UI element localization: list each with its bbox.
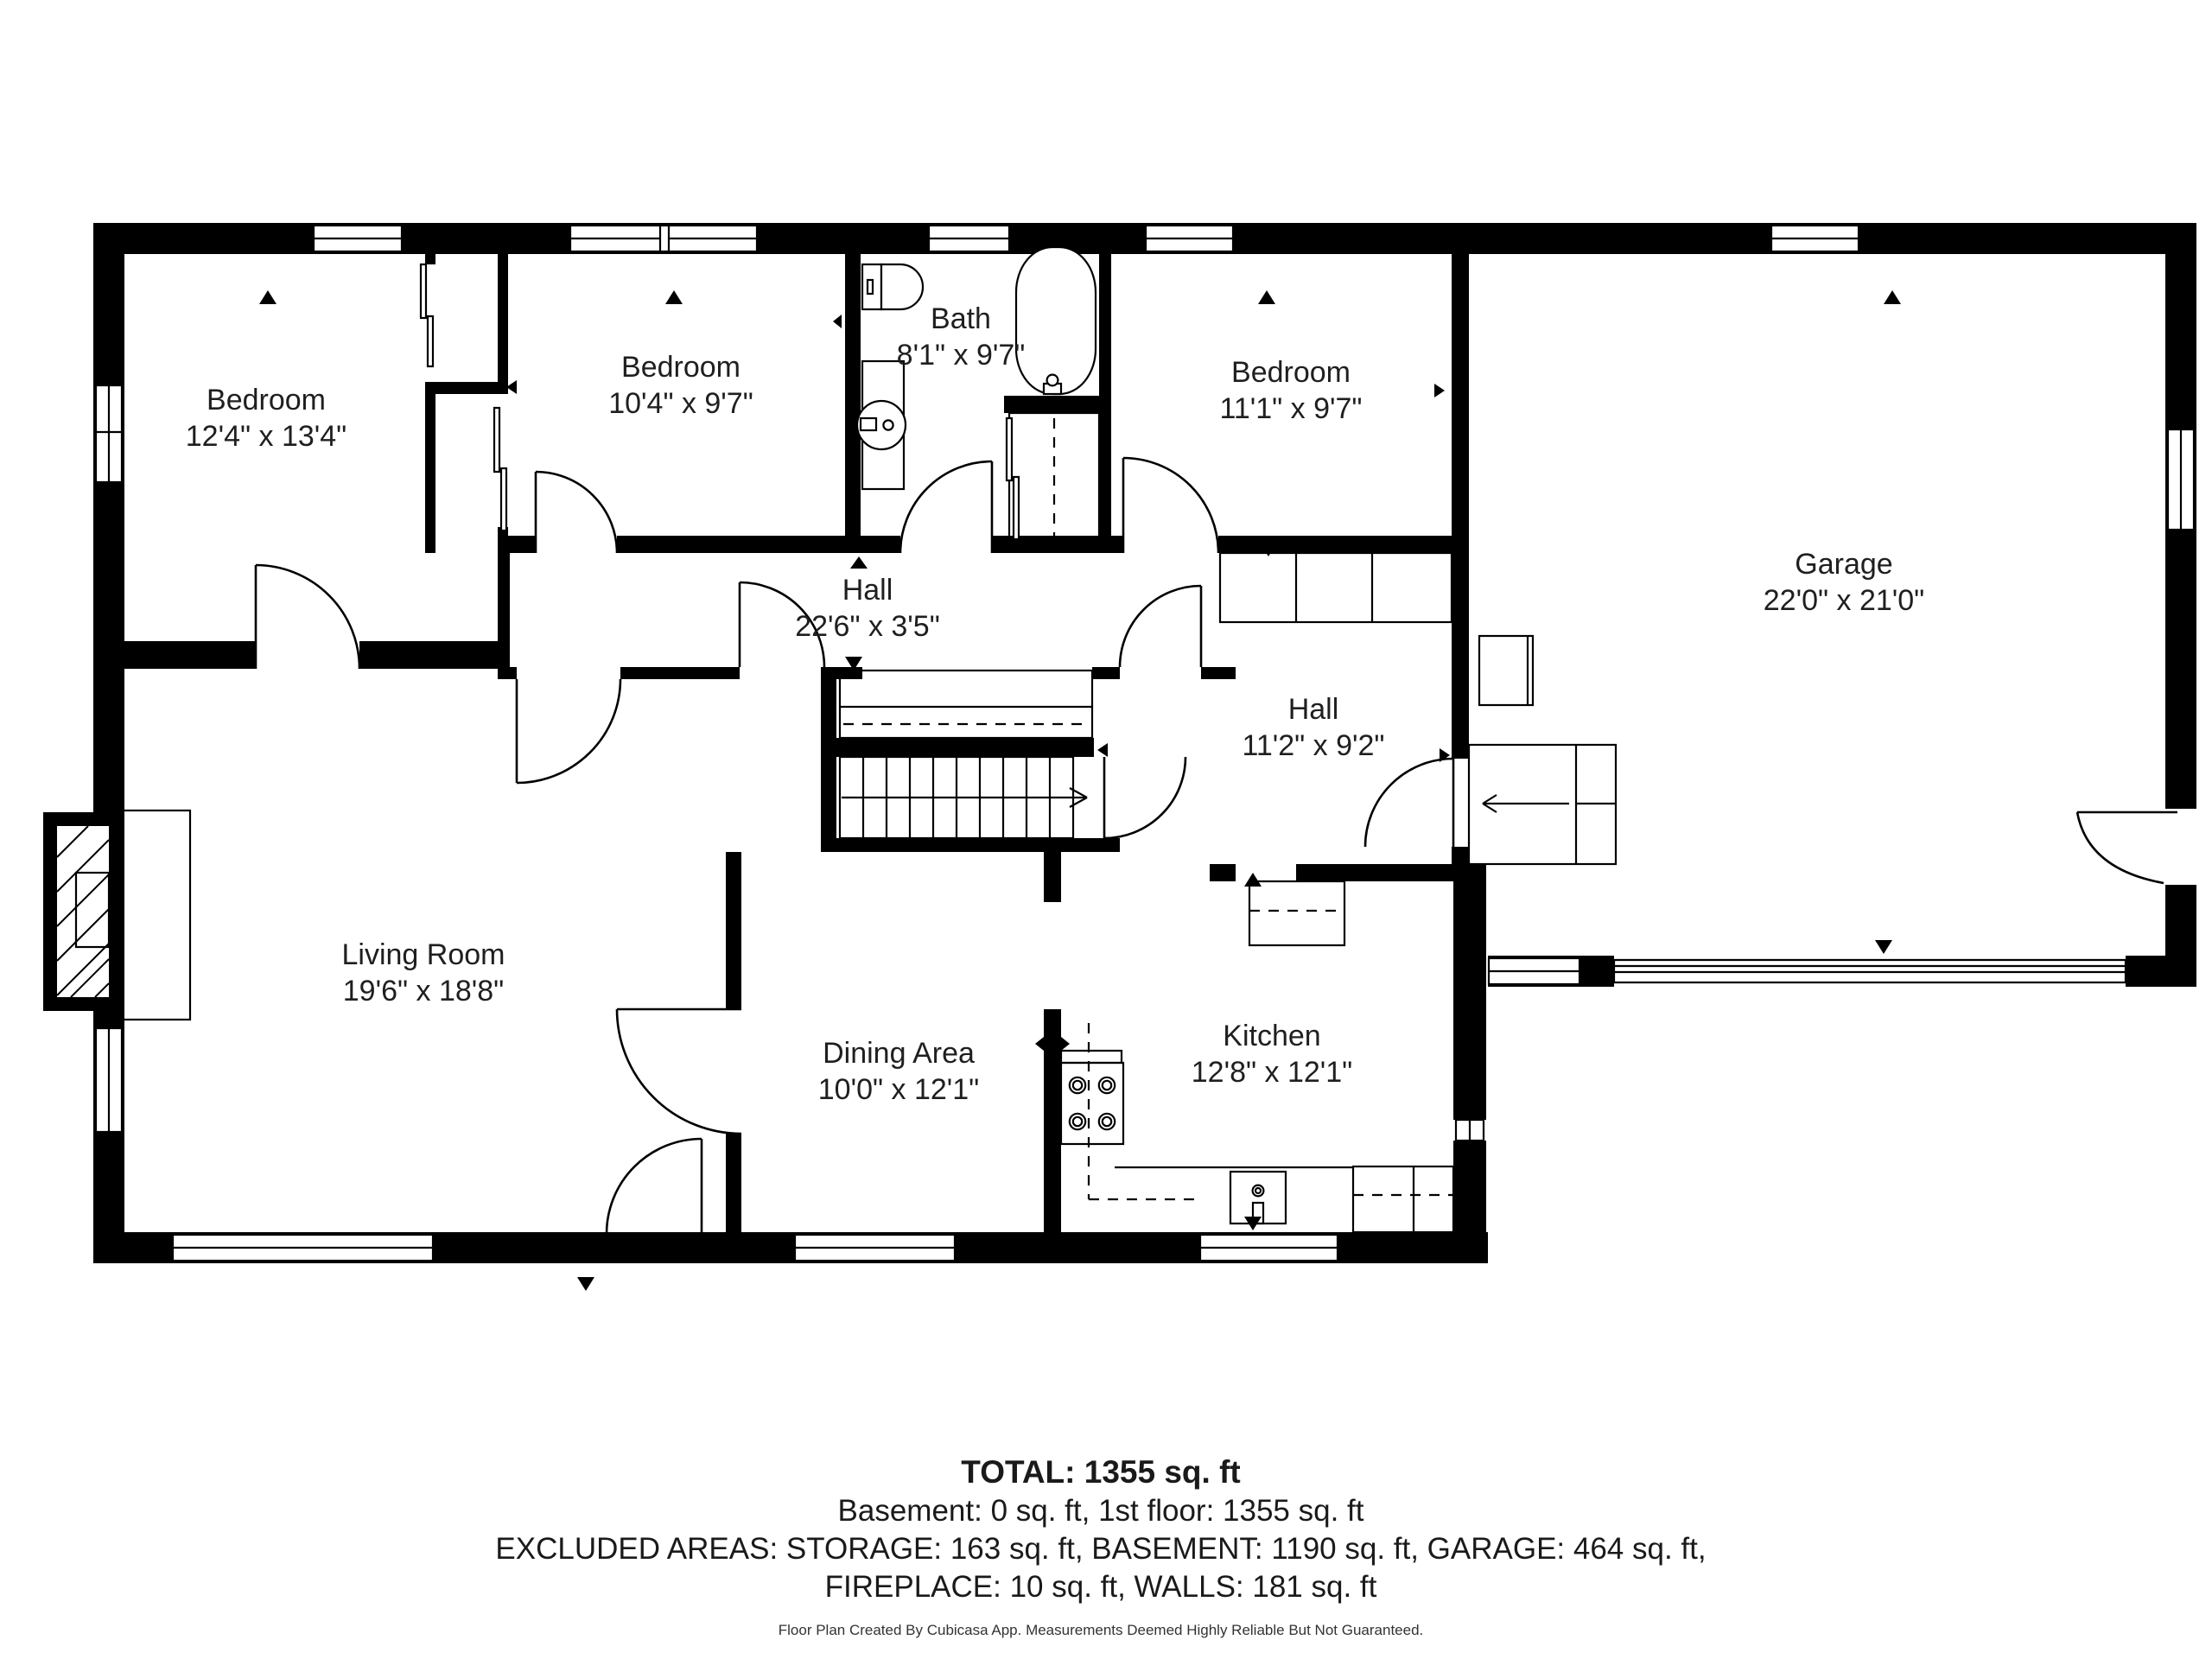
window-living-bottom: [173, 1235, 433, 1261]
svg-text:8'1" x 9'7": 8'1" x 9'7": [897, 339, 1026, 372]
closets: [421, 264, 1099, 738]
garage-steps: [1469, 745, 1616, 864]
door-bedroom2: [536, 472, 617, 553]
door-basement: [1104, 757, 1185, 838]
range-stove: [1061, 1051, 1123, 1144]
exterior-walls: [93, 223, 2196, 1263]
garage-items: [1469, 636, 1616, 864]
svg-text:10'0" x 12'1": 10'0" x 12'1": [818, 1073, 979, 1106]
window-garage-right: [2168, 429, 2194, 530]
footer-disclaimer: Floor Plan Created By Cubicasa App. Meas…: [779, 1622, 1424, 1638]
door-bath: [900, 461, 992, 553]
staircase: [840, 757, 1087, 838]
room-label-hall-1: Hall 22'6" x 3'5": [795, 574, 940, 643]
bath-vanity-sink: [857, 361, 906, 489]
window-bedroom2-top: [570, 226, 757, 251]
garage-door: [1614, 956, 2126, 987]
svg-text:Bedroom: Bedroom: [621, 351, 741, 384]
svg-text:Hall: Hall: [1288, 693, 1339, 726]
kitchen-sink: [1115, 1167, 1353, 1224]
windows: [96, 226, 2194, 1261]
hearth: [123, 810, 190, 1020]
floorplan-svg: Bedroom 12'4" x 13'4" Bedroom 10'4" x 9'…: [0, 0, 2212, 1659]
svg-text:Bedroom: Bedroom: [1231, 356, 1351, 389]
door-front: [607, 1139, 702, 1234]
hall2-cabinets: [1220, 553, 1452, 622]
door-hall-living: [517, 679, 620, 783]
window-kitchen-bottom: [1200, 1235, 1338, 1261]
svg-text:Dining Area: Dining Area: [823, 1037, 975, 1070]
svg-text:12'4" x 13'4": 12'4" x 13'4": [186, 420, 346, 453]
svg-text:Garage: Garage: [1795, 548, 1892, 581]
svg-text:Bedroom: Bedroom: [207, 384, 326, 416]
linen-closet: [1007, 413, 1099, 543]
closet-bedroom1-slider: [421, 264, 433, 366]
floorplan-canvas: Bedroom 12'4" x 13'4" Bedroom 10'4" x 9'…: [0, 0, 2212, 1659]
summary-block: TOTAL: 1355 sq. ft Basement: 0 sq. ft, 1…: [495, 1454, 1706, 1638]
flow-arrows: [259, 290, 1901, 1291]
window-living-left: [96, 1028, 122, 1132]
svg-text:12'8" x 12'1": 12'8" x 12'1": [1192, 1056, 1352, 1089]
room-label-kitchen: Kitchen 12'8" x 12'1": [1192, 1020, 1352, 1089]
room-label-garage: Garage 22'0" x 21'0": [1764, 548, 1924, 617]
storage-over-stairs: [840, 671, 1092, 738]
summary-line2: EXCLUDED AREAS: STORAGE: 163 sq. ft, BAS…: [495, 1532, 1706, 1566]
kitchen-right-counter: [1353, 1166, 1453, 1232]
kitchen-top-counter: [1249, 881, 1344, 945]
svg-text:11'2" x 9'2": 11'2" x 9'2": [1242, 729, 1384, 762]
door-living-dining: [617, 1009, 741, 1134]
summary-total: TOTAL: 1355 sq. ft: [961, 1454, 1240, 1490]
svg-text:22'0" x 21'0": 22'0" x 21'0": [1764, 584, 1924, 617]
window-garage-top: [1771, 226, 1859, 251]
window-garage-bottom: [1489, 958, 1580, 984]
window-bath-top: [929, 226, 1009, 251]
door-bedroom1: [256, 565, 359, 669]
window-kitchen-right: [1456, 1120, 1484, 1141]
svg-text:10'4" x 9'7": 10'4" x 9'7": [608, 387, 753, 420]
room-label-living-room: Living Room 19'6" x 18'8": [342, 938, 505, 1007]
room-label-bedroom-1: Bedroom 12'4" x 13'4": [186, 384, 346, 453]
fireplace: [43, 810, 190, 1020]
room-label-hall-2: Hall 11'2" x 9'2": [1242, 693, 1384, 762]
door-bedroom3: [1123, 458, 1218, 553]
toilet: [862, 264, 923, 309]
svg-text:Hall: Hall: [842, 574, 893, 607]
window-dining-bottom: [795, 1235, 955, 1261]
window-bedroom1-top: [314, 226, 402, 251]
bathtub: [1016, 247, 1096, 394]
door-hall-east: [1120, 586, 1201, 667]
room-label-bath: Bath 8'1" x 9'7": [897, 302, 1026, 372]
room-label-bedroom-2: Bedroom 10'4" x 9'7": [608, 351, 753, 420]
window-bedroom1-left: [96, 385, 122, 482]
doors: [256, 458, 2196, 1234]
svg-text:22'6" x 3'5": 22'6" x 3'5": [795, 610, 940, 643]
svg-text:19'6" x 18'8": 19'6" x 18'8": [343, 975, 504, 1007]
svg-text:11'1" x 9'7": 11'1" x 9'7": [1219, 392, 1362, 425]
summary-line1: Basement: 0 sq. ft, 1st floor: 1355 sq. …: [838, 1494, 1364, 1528]
summary-line3: FIREPLACE: 10 sq. ft, WALLS: 181 sq. ft: [825, 1570, 1377, 1604]
svg-text:Bath: Bath: [931, 302, 991, 335]
svg-text:Kitchen: Kitchen: [1223, 1020, 1320, 1052]
room-label-dining-area: Dining Area 10'0" x 12'1": [818, 1037, 979, 1106]
svg-text:Living Room: Living Room: [342, 938, 505, 971]
door-garage-side: [2077, 809, 2196, 885]
room-label-bedroom-3: Bedroom 11'1" x 9'7": [1219, 356, 1362, 425]
closet-bedroom2-slider: [494, 408, 506, 531]
window-bedroom3-top: [1146, 226, 1233, 251]
door-garage-hall: [1365, 759, 1453, 847]
furnace: [1479, 636, 1533, 705]
